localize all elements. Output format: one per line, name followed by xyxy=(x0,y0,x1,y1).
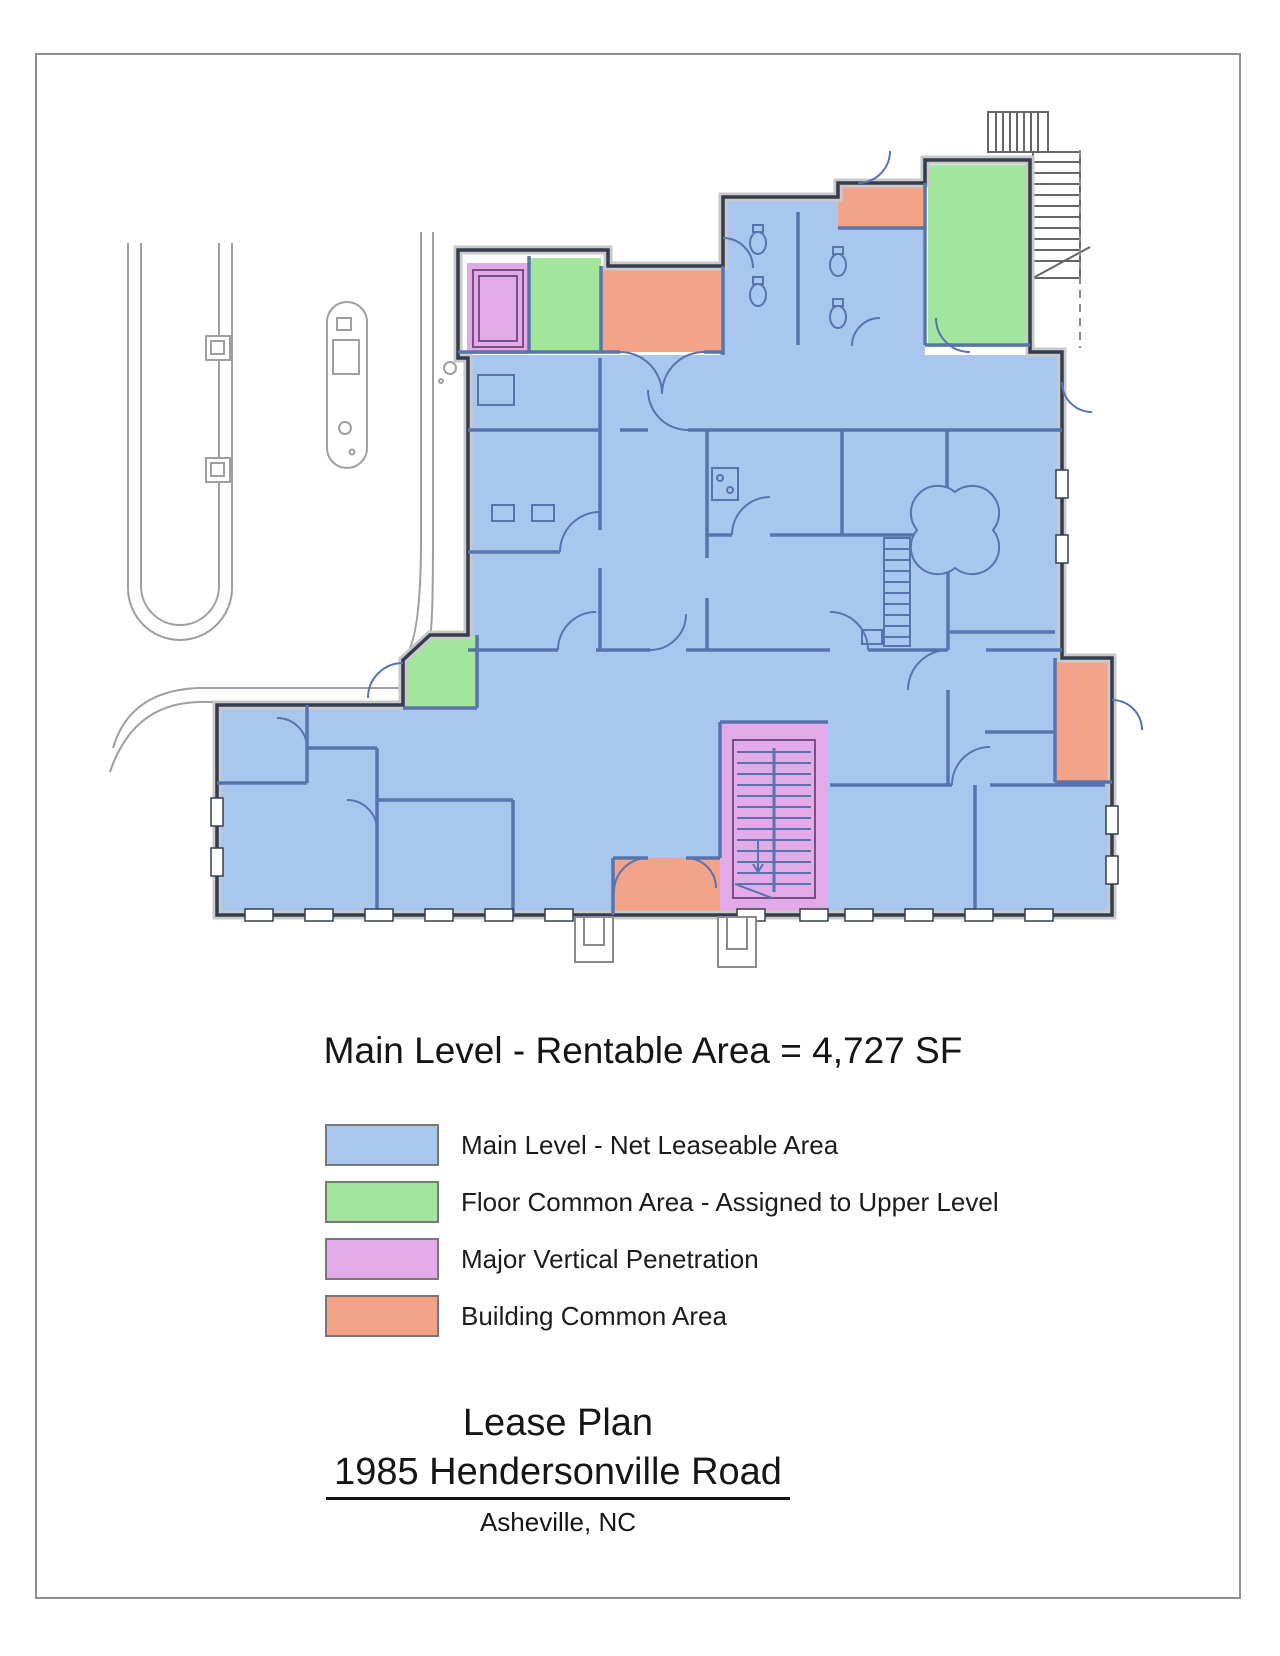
legend-item-floor-common: Floor Common Area - Assigned to Upper Le… xyxy=(325,1182,999,1222)
region-floor-common-top-left xyxy=(529,258,601,352)
sidewalk-2 xyxy=(429,232,433,636)
legend-item-vertical-penetration: Major Vertical Penetration xyxy=(325,1239,999,1279)
clover-door xyxy=(911,486,999,574)
footer-title-block: Lease Plan 1985 Hendersonville Road Ashe… xyxy=(0,1402,1116,1538)
region-building-common-vestibule xyxy=(613,858,720,915)
footer-lease-plan: Lease Plan xyxy=(0,1402,1116,1445)
legend-label: Major Vertical Penetration xyxy=(461,1244,759,1275)
legend-swatch-net-leaseable xyxy=(325,1124,439,1166)
legend-swatch-vertical-penetration xyxy=(325,1238,439,1280)
legend-label: Floor Common Area - Assigned to Upper Le… xyxy=(461,1187,999,1218)
region-building-common-strip xyxy=(838,183,925,228)
legend-label: Main Level - Net Leaseable Area xyxy=(461,1130,838,1161)
site-marker xyxy=(444,362,456,374)
driveway-loop-inner xyxy=(141,243,219,625)
legend-swatch-building-common xyxy=(325,1295,439,1337)
entry-stoops xyxy=(575,917,756,967)
legend-swatch-floor-common xyxy=(325,1181,439,1223)
footer-address: 1985 Hendersonville Road xyxy=(326,1449,790,1500)
region-building-common-top-corridor xyxy=(601,266,723,352)
parking-island xyxy=(327,302,367,468)
legend-label: Building Common Area xyxy=(461,1301,727,1332)
legend-item-building-common: Building Common Area xyxy=(325,1296,999,1336)
plan-title: Main Level - Rentable Area = 4,727 SF xyxy=(86,1030,1200,1072)
legend-item-net-leaseable: Main Level - Net Leaseable Area xyxy=(325,1125,999,1165)
legend: Main Level - Net Leaseable Area Floor Co… xyxy=(325,1125,999,1353)
sidewalk-1 xyxy=(400,232,421,661)
driveway-loop-outer xyxy=(128,243,232,640)
footer-city: Asheville, NC xyxy=(0,1507,1116,1538)
floor-plan xyxy=(0,0,1280,1010)
region-building-common-right-room xyxy=(1055,658,1112,782)
region-floor-common-right xyxy=(928,165,1028,347)
lease-plan-page: { "document": { "title": "Main Level - R… xyxy=(0,0,1280,1656)
